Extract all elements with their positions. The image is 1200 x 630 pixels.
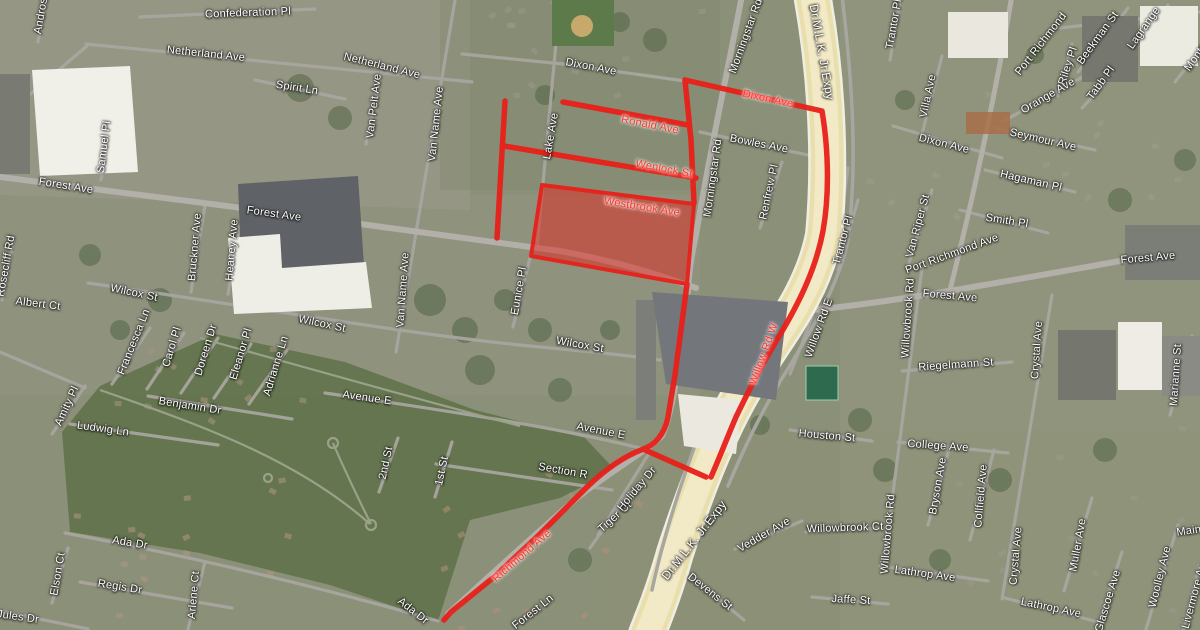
basemap-svg xyxy=(0,0,1200,630)
bigbox-store-topleft xyxy=(32,66,138,176)
sports-court xyxy=(806,366,838,400)
ballfield-infield xyxy=(571,15,593,37)
map-canvas[interactable]: AndrosConfederation PlNetherland AveNeth… xyxy=(0,0,1200,630)
